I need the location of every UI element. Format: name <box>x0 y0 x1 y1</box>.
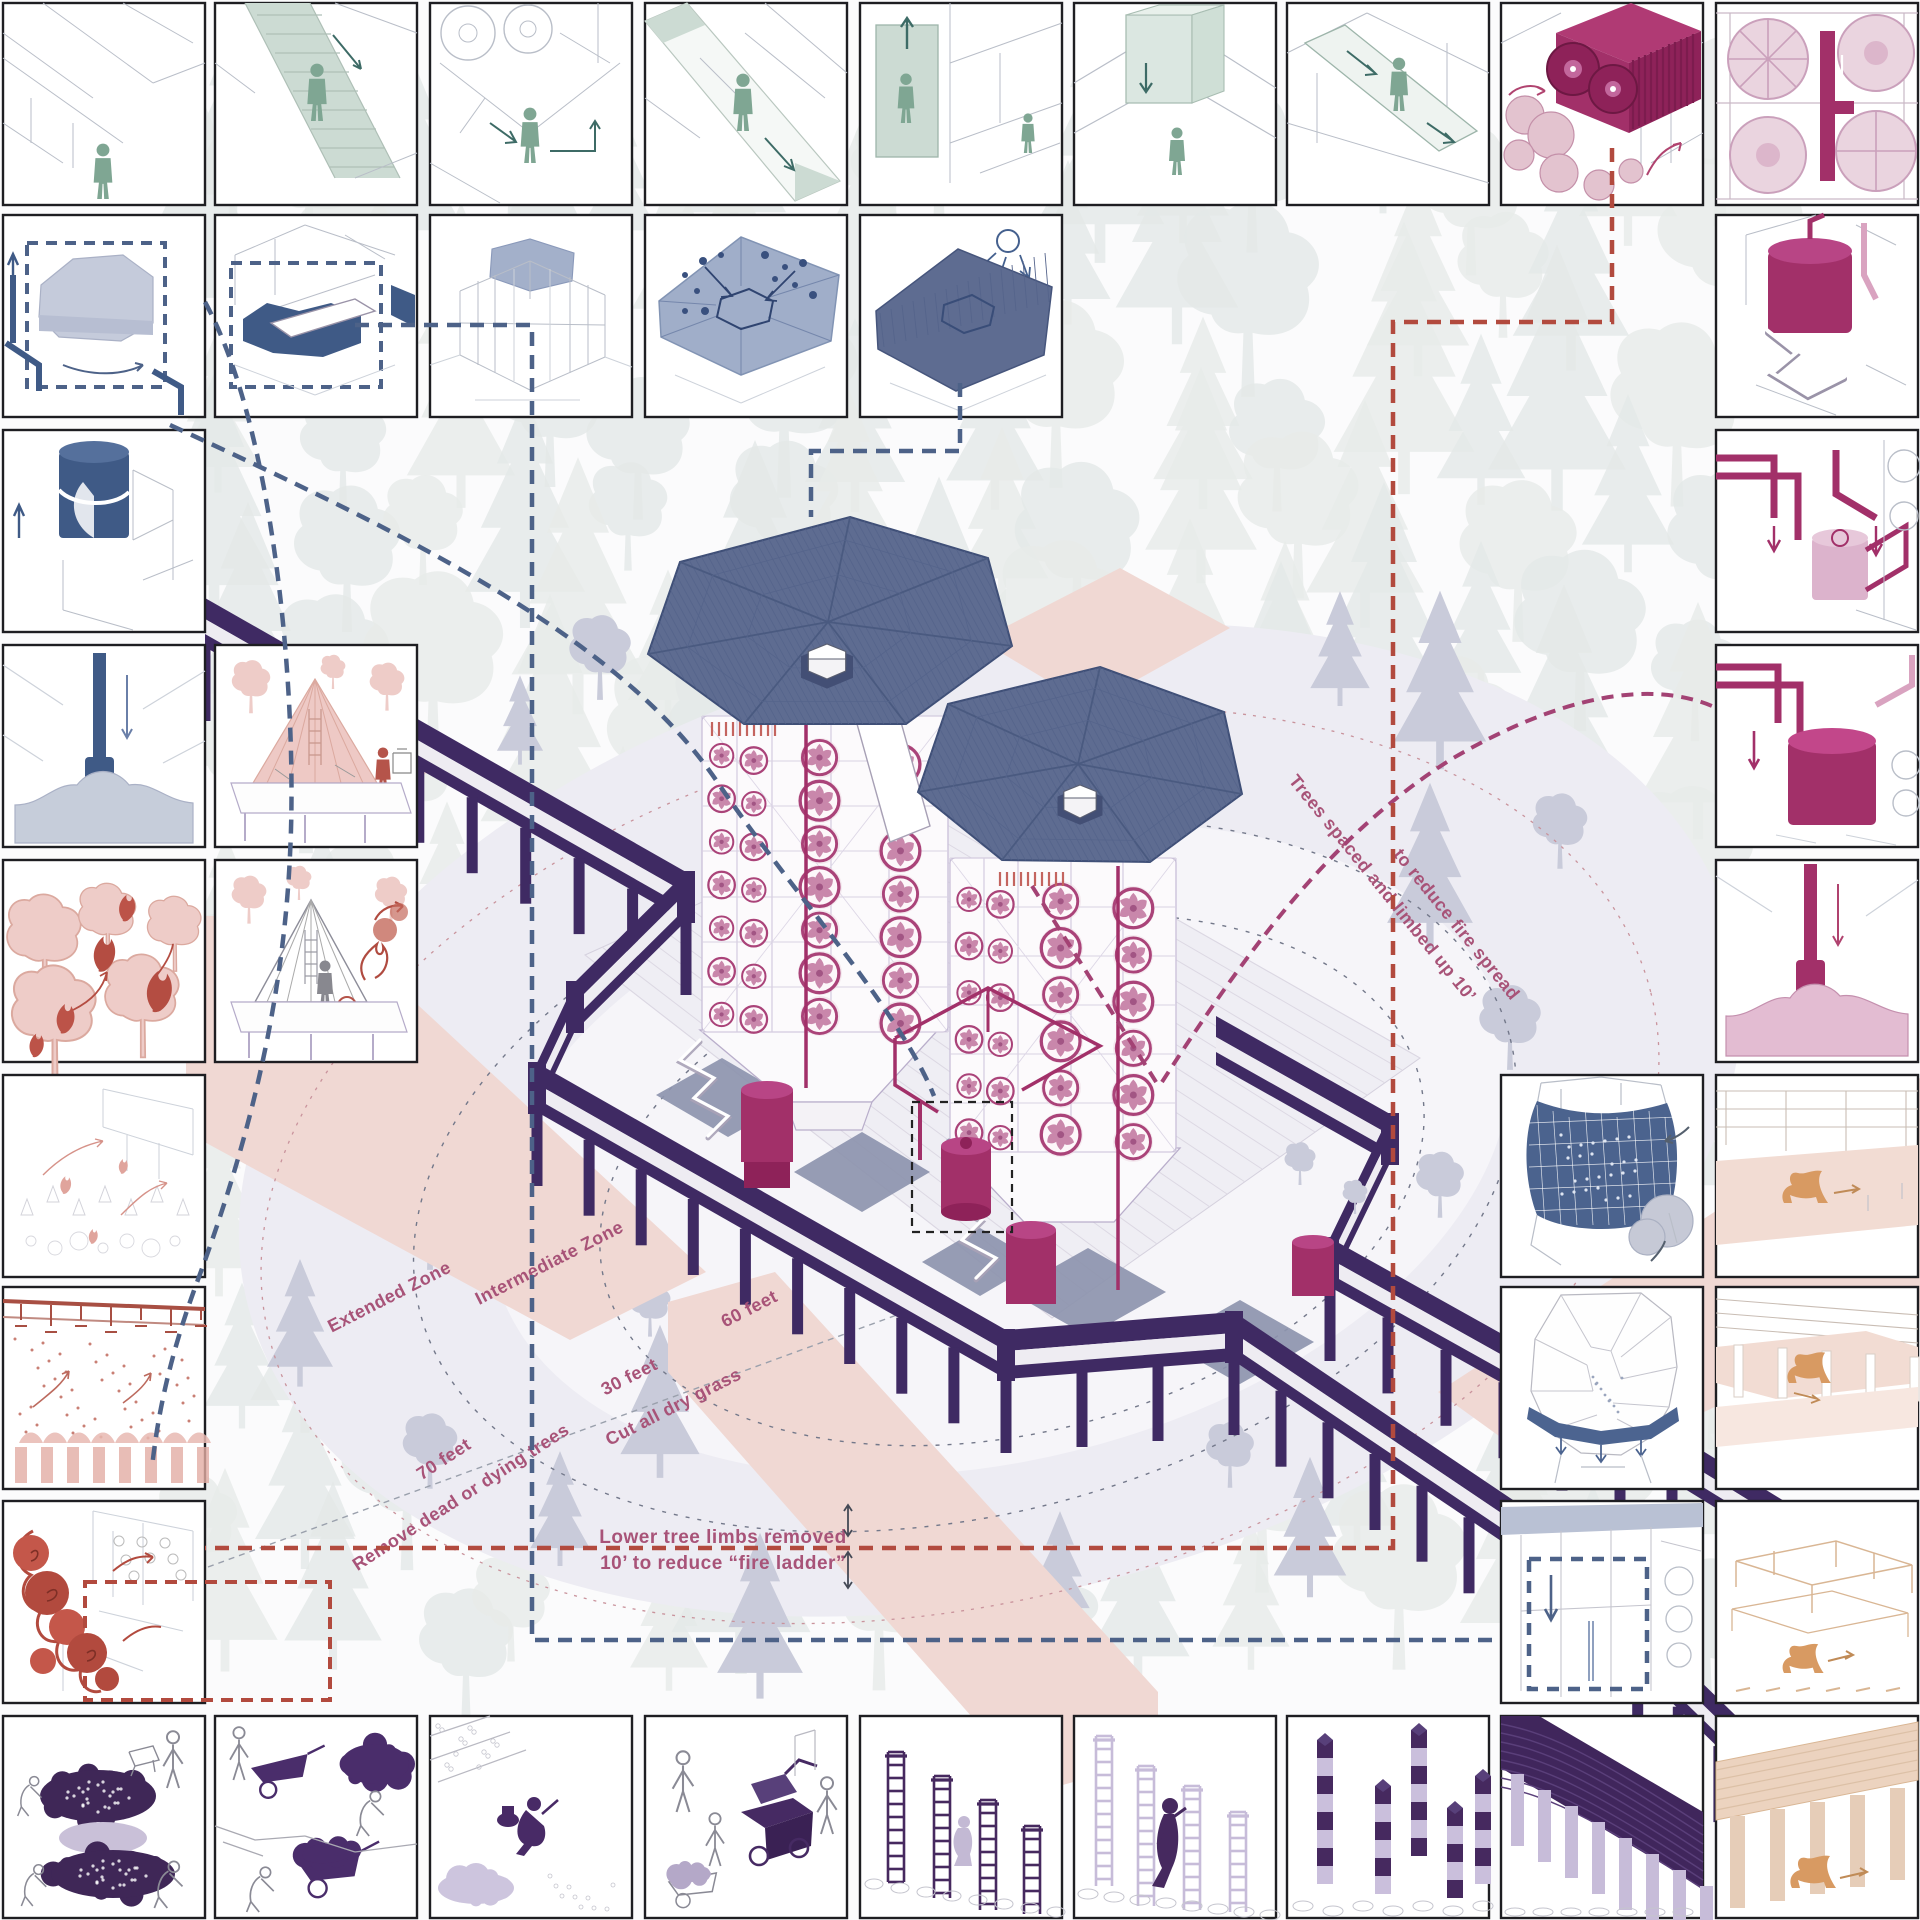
svg-text:Lower tree limbs removed: Lower tree limbs removed <box>599 1527 846 1548</box>
svg-text:10’ to reduce “fire ladder”: 10’ to reduce “fire ladder” <box>600 1553 846 1574</box>
